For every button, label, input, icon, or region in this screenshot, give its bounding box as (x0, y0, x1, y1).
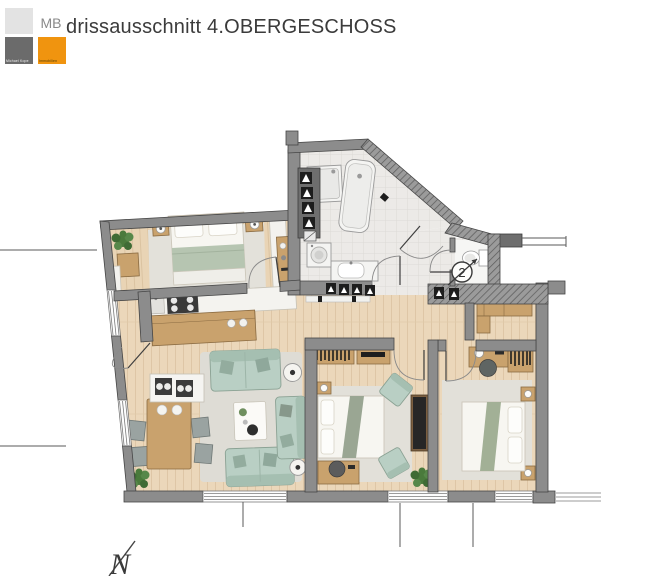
wardrobe-front (413, 397, 426, 449)
burner-icon (185, 385, 192, 392)
bed-pillow (321, 429, 334, 454)
wall-bedroom3-top (438, 340, 446, 351)
office-chair-icon (480, 360, 497, 377)
page: MB Michael Kope Immobilien drissausschni… (0, 0, 653, 576)
office-chair-icon (329, 461, 345, 477)
washbasin (331, 261, 378, 281)
wall-bottom (124, 491, 203, 502)
lamp-icon (525, 470, 532, 477)
desk-item (348, 465, 355, 469)
plate-icon (172, 405, 182, 415)
wall-bedrooms-divider (428, 340, 438, 492)
dining-chair (191, 417, 210, 438)
wall-kitchen (280, 280, 300, 292)
bed-pillow (508, 407, 522, 433)
threshold-tick (318, 296, 322, 302)
dining-table (147, 399, 191, 469)
wall-stub-right (548, 281, 565, 294)
entrance-number: 2 (458, 265, 465, 280)
wall-nook-stub (138, 291, 153, 342)
wall-bottom (287, 491, 388, 502)
sofa-pillow (233, 454, 247, 468)
wall-living-bedroom2 (305, 340, 317, 492)
sofa-pillow (263, 453, 277, 467)
tv-icon (361, 352, 385, 357)
drum-icon (315, 251, 324, 260)
lamp-icon (321, 385, 328, 392)
kitchen-island (151, 310, 257, 346)
island-item (227, 319, 235, 327)
wall-wc-right (488, 234, 500, 290)
wall-stub-top (286, 131, 298, 145)
sofa-pillow (219, 360, 234, 375)
burner-icon (164, 383, 171, 390)
books-icon (317, 349, 349, 361)
floor-plan: 2 N (0, 0, 653, 576)
knob-icon (311, 245, 313, 247)
burner-icon (156, 383, 163, 390)
threshold (306, 296, 370, 302)
desk-item (495, 351, 504, 355)
dining-chair (194, 443, 213, 463)
north-label: N (109, 548, 132, 576)
bed-pillow (508, 437, 522, 463)
desk-item (281, 268, 288, 271)
wall-closet-left (465, 303, 474, 340)
faucet-icon (350, 262, 353, 265)
bed-pillow (321, 400, 334, 425)
wardrobe (477, 303, 532, 316)
sofa (210, 349, 281, 391)
lamp-icon (525, 391, 532, 398)
north-arrow: N (109, 541, 135, 576)
wall-entry-band (428, 284, 548, 304)
desk-item (280, 243, 286, 249)
chaise (275, 396, 307, 459)
sofa-pillow (255, 357, 270, 372)
washing-machine (307, 243, 331, 267)
wall-bottom (448, 491, 495, 502)
coffee-table (234, 401, 267, 440)
threshold-tick (352, 296, 356, 302)
wall-bedroom3-top (476, 340, 536, 351)
island-item (239, 319, 247, 327)
wall-bottom-corner (533, 491, 555, 503)
bed-blanket (172, 244, 245, 272)
burner-icon (177, 385, 184, 392)
wall-right (536, 283, 548, 492)
sofa-pillow (279, 404, 293, 418)
wall-bedroom2-top (305, 338, 394, 350)
wardrobe (477, 316, 490, 333)
plate-icon (157, 405, 167, 415)
